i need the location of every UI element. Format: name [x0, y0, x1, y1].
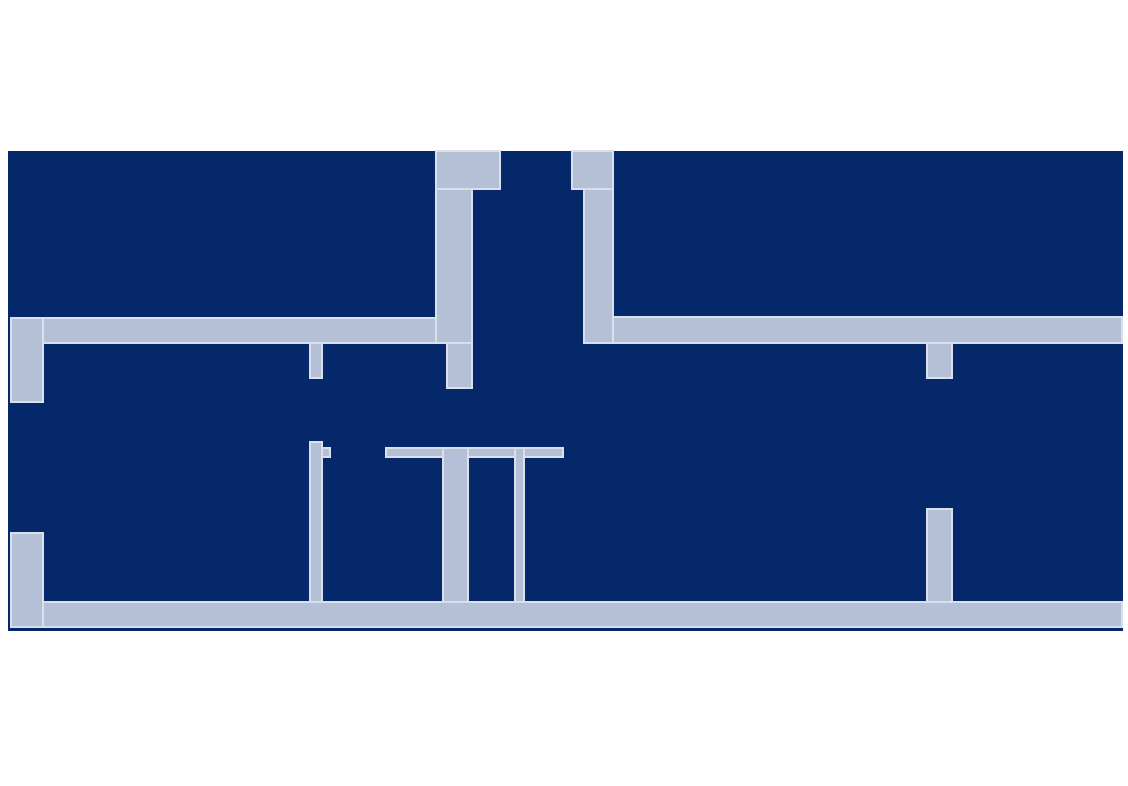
pillar-right-shaft — [584, 189, 613, 343]
left-wall-lower — [11, 533, 43, 627]
floor-plan-canvas — [0, 0, 1128, 786]
divider-strip-wide — [443, 448, 468, 602]
pillar-left-extension — [447, 343, 472, 388]
bottom-corridor — [11, 602, 1122, 627]
mid-wall-stub-upper — [310, 343, 322, 378]
mid-wall-lower — [310, 442, 322, 602]
building-structure — [8, 151, 1123, 631]
upper-corridor-right — [584, 317, 1122, 343]
page-background — [0, 0, 1128, 786]
divider-strip-thin — [515, 448, 524, 602]
right-wall-stub-upper — [927, 343, 952, 378]
pillar-right-cap — [572, 151, 613, 189]
right-wall-lower — [927, 509, 952, 602]
pillar-left-cap — [436, 151, 500, 189]
upper-corridor-left — [11, 318, 472, 343]
divider-band — [386, 448, 563, 457]
pillar-left-shaft — [436, 189, 472, 343]
left-wall-upper — [11, 318, 43, 402]
mid-wall-tick — [322, 448, 330, 457]
